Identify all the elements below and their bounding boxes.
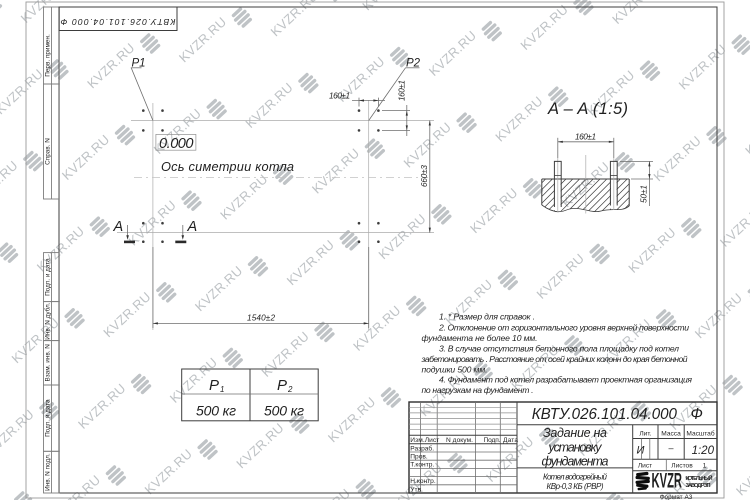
svg-text:установку: установку bbox=[548, 441, 603, 455]
svg-text:Дата: Дата bbox=[503, 437, 518, 444]
svg-text:N докум.: N докум. bbox=[446, 437, 473, 444]
svg-text:Листов: Листов bbox=[671, 463, 693, 470]
svg-text:Т.контр.: Т.контр. bbox=[410, 462, 434, 469]
svg-text:Лист: Лист bbox=[638, 463, 652, 470]
svg-text:KVZR.RU: KVZR.RU bbox=[517, 2, 571, 53]
svg-text:КВТУ.026.101.04.000: КВТУ.026.101.04.000 bbox=[532, 406, 678, 423]
svg-text:KVZR.RU: KVZR.RU bbox=[742, 107, 750, 158]
svg-text:KVZR.RU: KVZR.RU bbox=[242, 80, 296, 131]
svg-text:160±1: 160±1 bbox=[397, 80, 406, 101]
svg-text:KVZR.RU: KVZR.RU bbox=[176, 14, 230, 65]
svg-text:1540±2: 1540±2 bbox=[247, 313, 275, 322]
svg-text:Масштаб: Масштаб bbox=[686, 429, 714, 437]
svg-text:КОТЕЛЬНЫЙ: КОТЕЛЬНЫЙ bbox=[686, 474, 713, 482]
svg-text:KVZR.RU: KVZR.RU bbox=[0, 158, 21, 209]
svg-text:1:20: 1:20 bbox=[692, 445, 715, 457]
svg-text:500 кг: 500 кг bbox=[264, 403, 304, 419]
svg-text:P2: P2 bbox=[406, 58, 421, 70]
svg-text:KVZR.RU: KVZR.RU bbox=[75, 380, 129, 431]
svg-text:ЗАВОД РЭП: ЗАВОД РЭП bbox=[686, 483, 711, 489]
svg-text:Ось симетрии котла: Ось симетрии котла bbox=[161, 159, 294, 174]
svg-text:3. В случае отсутствия бетонно: 3. В случае отсутствия бетонного пола пл… bbox=[439, 344, 679, 354]
svg-text:Подп.: Подп. bbox=[484, 437, 501, 444]
svg-text:KVZR.RU: KVZR.RU bbox=[233, 420, 287, 471]
svg-text:забетонировать . Расстояние от: забетонировать . Расстояние от осей край… bbox=[421, 354, 688, 364]
svg-text:КВТУ.026.101.04.000 Ф: КВТУ.026.101.04.000 Ф bbox=[60, 17, 175, 27]
svg-text:KVZR.RU: KVZR.RU bbox=[284, 237, 338, 288]
svg-text:A: A bbox=[113, 219, 124, 235]
svg-text:Пров.: Пров. bbox=[410, 454, 428, 461]
svg-text:KVZR: KVZR bbox=[652, 470, 683, 493]
svg-text:Лит.: Лит. bbox=[639, 430, 651, 437]
svg-text:KVZR.RU: KVZR.RU bbox=[268, 0, 322, 39]
svg-text:4. Фундамент под котел разраба: 4. Фундамент под котел разрабатывает про… bbox=[439, 375, 692, 385]
svg-text:Подп. и дата: Подп. и дата bbox=[45, 258, 52, 296]
svg-text:KVZR.RU: KVZR.RU bbox=[534, 250, 588, 301]
svg-text:KVZR.RU: KVZR.RU bbox=[375, 211, 429, 262]
svg-text:KVZR.RU: KVZR.RU bbox=[625, 224, 679, 275]
svg-text:Подп. и дата: Подп. и дата bbox=[45, 399, 52, 437]
svg-text:50±1: 50±1 bbox=[640, 185, 649, 203]
svg-text:фундамента: фундамента bbox=[542, 455, 609, 469]
svg-text:Котел водогрейный: Котел водогрейный bbox=[543, 473, 608, 482]
svg-text:KVZR.RU: KVZR.RU bbox=[650, 133, 704, 184]
svg-text:Формат А3: Формат А3 bbox=[660, 494, 693, 500]
svg-text:KVZR.RU: KVZR.RU bbox=[692, 290, 746, 341]
svg-text:Инв. N дубл.: Инв. N дубл. bbox=[44, 302, 52, 340]
svg-text:фундамента не более 10 мм.: фундамента не более 10 мм. bbox=[422, 333, 538, 343]
svg-text:–: – bbox=[668, 443, 673, 453]
svg-text:KVZR.RU: KVZR.RU bbox=[733, 447, 750, 498]
svg-text:KVZR.RU: KVZR.RU bbox=[401, 119, 455, 170]
svg-text:P: P bbox=[209, 377, 219, 394]
svg-text:P1: P1 bbox=[132, 58, 146, 70]
svg-text:KVZR.RU: KVZR.RU bbox=[0, 66, 46, 117]
svg-text:KVZR.RU: KVZR.RU bbox=[350, 302, 404, 353]
svg-text:KVZR.RU: KVZR.RU bbox=[426, 28, 480, 79]
svg-text:660±3: 660±3 bbox=[420, 165, 429, 187]
svg-text:A: A bbox=[187, 219, 198, 235]
svg-text:1: 1 bbox=[220, 385, 224, 394]
svg-text:2: 2 bbox=[287, 385, 293, 394]
svg-text:Перв. примен.: Перв. примен. bbox=[45, 34, 52, 77]
svg-text:И: И bbox=[637, 445, 645, 457]
svg-text:500 кг: 500 кг bbox=[196, 403, 236, 419]
svg-text:KVZR.RU: KVZR.RU bbox=[701, 0, 750, 1]
svg-text:Масса: Масса bbox=[661, 430, 681, 437]
svg-text:KVZR.RU: KVZR.RU bbox=[34, 223, 88, 274]
svg-text:KVZR.RU: KVZR.RU bbox=[59, 132, 113, 183]
svg-text:1: 1 bbox=[703, 463, 707, 470]
svg-text:160±1: 160±1 bbox=[329, 91, 350, 100]
svg-text:KVZR.RU: KVZR.RU bbox=[0, 406, 37, 457]
svg-text:по нагрузкам на фундамент .: по нагрузкам на фундамент . bbox=[422, 385, 534, 395]
svg-text:KVZR.RU: KVZR.RU bbox=[192, 263, 246, 314]
svg-text:160±1: 160±1 bbox=[575, 132, 596, 141]
svg-text:KVZR.RU: KVZR.RU bbox=[467, 185, 521, 236]
svg-text:KVZR.RU: KVZR.RU bbox=[492, 93, 546, 144]
svg-text:Задание на: Задание на bbox=[543, 426, 607, 440]
svg-text:KVZR.RU: KVZR.RU bbox=[676, 41, 730, 92]
svg-text:KVZR.RU: KVZR.RU bbox=[325, 394, 379, 445]
svg-text:A – A (1:5): A – A (1:5) bbox=[547, 100, 628, 118]
svg-text:KVZR.RU: KVZR.RU bbox=[100, 289, 154, 340]
svg-text:KVZR.RU: KVZR.RU bbox=[609, 0, 663, 27]
svg-text:0.000: 0.000 bbox=[159, 136, 194, 152]
svg-text:Ф: Ф bbox=[691, 406, 703, 423]
svg-text:Справ. N: Справ. N bbox=[45, 138, 52, 165]
svg-text:Н.контр.: Н.контр. bbox=[410, 478, 436, 485]
svg-text:Инв. N подл.: Инв. N подл. bbox=[45, 453, 52, 491]
svg-text:KVZR.RU: KVZR.RU bbox=[309, 145, 363, 196]
svg-text:подушки 500 мм.: подушки 500 мм. bbox=[422, 365, 488, 375]
svg-text:KVZR.RU: KVZR.RU bbox=[142, 446, 196, 497]
svg-text:2. Отклонение от горизонтально: 2. Отклонение от горизонтального уровня … bbox=[438, 323, 689, 333]
svg-text:KVZR.RU: KVZR.RU bbox=[50, 472, 104, 500]
svg-text:P: P bbox=[277, 377, 287, 394]
svg-text:1. * Размер для справок .: 1. * Размер для справок . bbox=[439, 312, 535, 322]
svg-text:Утв.: Утв. bbox=[410, 486, 423, 493]
svg-text:Разраб.: Разраб. bbox=[410, 444, 434, 452]
svg-text:Изм.Лист: Изм.Лист bbox=[410, 437, 439, 444]
svg-text:KVZR.RU: KVZR.RU bbox=[717, 198, 750, 249]
svg-text:KVZR.RU: KVZR.RU bbox=[217, 171, 271, 222]
svg-text:KVZR.RU: KVZR.RU bbox=[84, 40, 138, 91]
svg-text:КВр-0,3 КБ (РВР): КВр-0,3 КБ (РВР) bbox=[547, 482, 604, 491]
svg-text:KVZR.RU: KVZR.RU bbox=[258, 328, 312, 379]
svg-text:Взам. инв. N: Взам. инв. N bbox=[45, 344, 52, 382]
